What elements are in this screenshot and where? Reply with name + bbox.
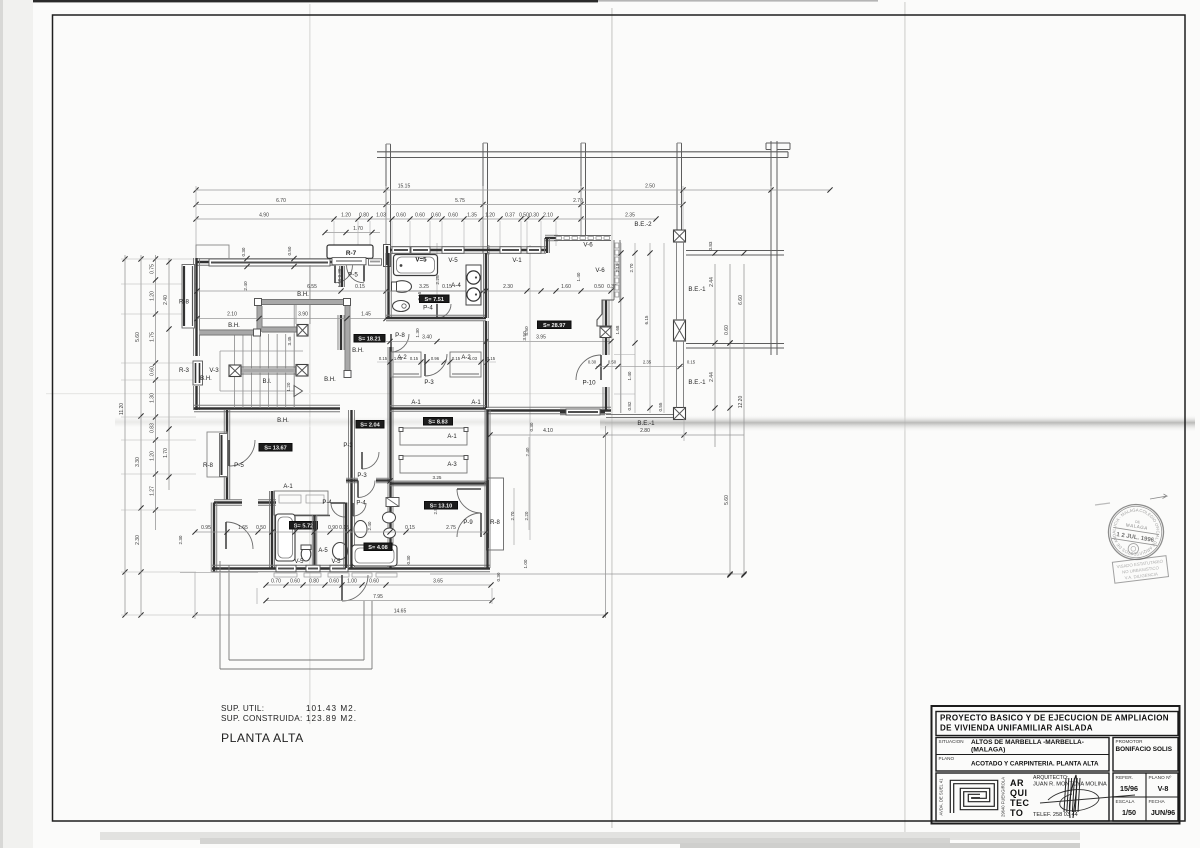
svg-text:0.50: 0.50 <box>594 284 604 290</box>
svg-text:0.50: 0.50 <box>519 213 529 219</box>
svg-text:0.60: 0.60 <box>415 213 425 219</box>
svg-text:1.20: 1.20 <box>485 213 495 219</box>
svg-text:B.H.: B.H. <box>277 418 289 424</box>
svg-text:1/50: 1/50 <box>1122 808 1136 817</box>
svg-text:2.40: 2.40 <box>163 295 169 305</box>
svg-text:1.40: 1.40 <box>627 371 632 380</box>
svg-text:P-10: P-10 <box>582 380 596 387</box>
svg-text:0.15: 0.15 <box>452 356 461 361</box>
svg-text:P-5: P-5 <box>234 462 244 469</box>
svg-text:A-3: A-3 <box>447 462 457 468</box>
svg-text:SUP. CONSTRUIDA:: SUP. CONSTRUIDA: <box>221 714 303 723</box>
svg-text:2.30: 2.30 <box>135 535 141 545</box>
svg-text:0.75: 0.75 <box>150 264 156 274</box>
svg-text:FECHA: FECHA <box>1149 799 1166 805</box>
svg-text:0.70: 0.70 <box>271 579 281 585</box>
svg-text:B.I.: B.I. <box>262 379 271 385</box>
svg-text:0.80: 0.80 <box>309 579 319 585</box>
svg-text:0.15: 0.15 <box>687 360 696 365</box>
svg-text:V-5: V-5 <box>331 559 341 565</box>
svg-text:0.60: 0.60 <box>369 579 379 585</box>
svg-text:0.60: 0.60 <box>724 325 730 335</box>
svg-text:S= 8.83: S= 8.83 <box>428 419 447 425</box>
svg-text:SITUACION: SITUACION <box>939 739 964 744</box>
svg-text:A-4: A-4 <box>451 282 461 289</box>
svg-text:0.60: 0.60 <box>396 213 406 219</box>
svg-text:15/96: 15/96 <box>1120 784 1138 793</box>
svg-text:JUN/96: JUN/96 <box>1151 808 1175 817</box>
svg-text:2.35: 2.35 <box>625 213 635 219</box>
svg-text:V-5: V-5 <box>448 257 458 264</box>
svg-text:0.83: 0.83 <box>150 423 156 433</box>
svg-text:B.E.-2: B.E.-2 <box>634 221 652 228</box>
svg-text:A-1: A-1 <box>471 400 481 406</box>
svg-text:3.25: 3.25 <box>419 284 429 290</box>
svg-text:B.H.: B.H. <box>324 377 336 383</box>
svg-text:2.44: 2.44 <box>709 372 715 382</box>
svg-text:0.50: 0.50 <box>287 246 292 255</box>
svg-text:14.65: 14.65 <box>394 609 407 615</box>
svg-text:TELEF. 258 03 44: TELEF. 258 03 44 <box>1033 812 1078 818</box>
svg-text:0.60: 0.60 <box>150 366 156 376</box>
svg-text:1.03: 1.03 <box>394 356 403 361</box>
svg-text:S= 4.08: S= 4.08 <box>368 545 387 551</box>
svg-text:2.50: 2.50 <box>645 184 655 190</box>
svg-text:S= 28.97: S= 28.97 <box>543 323 566 329</box>
svg-text:1.00: 1.00 <box>347 579 357 585</box>
svg-text:SUP. UTIL:: SUP. UTIL: <box>221 704 264 713</box>
svg-text:B.E.-1: B.E.-1 <box>688 286 706 293</box>
svg-text:1.60: 1.60 <box>561 284 571 290</box>
svg-text:P-9: P-9 <box>463 520 473 526</box>
svg-text:6.70: 6.70 <box>276 198 286 204</box>
svg-text:P-5: P-5 <box>348 272 358 279</box>
svg-text:2.75: 2.75 <box>446 525 456 531</box>
svg-text:2.10: 2.10 <box>227 312 237 318</box>
svg-text:V-6: V-6 <box>583 242 593 249</box>
svg-text:JUAN R. MONTOYA MOLINA: JUAN R. MONTOYA MOLINA <box>1033 782 1107 788</box>
svg-text:V-1: V-1 <box>512 257 522 264</box>
svg-text:2.70: 2.70 <box>510 511 515 520</box>
svg-text:1.30: 1.30 <box>415 328 421 338</box>
svg-text:A-5: A-5 <box>318 548 328 554</box>
svg-text:P-4: P-4 <box>423 305 433 312</box>
svg-text:0.37: 0.37 <box>505 213 515 219</box>
svg-text:101.43 M2.: 101.43 M2. <box>306 704 357 713</box>
svg-text:3.40: 3.40 <box>422 335 432 341</box>
svg-text:0.82: 0.82 <box>627 401 632 410</box>
svg-text:15.15: 15.15 <box>398 184 411 190</box>
svg-text:1.65: 1.65 <box>238 525 248 531</box>
svg-text:1.45: 1.45 <box>361 312 371 318</box>
svg-text:2.30: 2.30 <box>178 535 183 544</box>
svg-text:S= 18.21: S= 18.21 <box>358 336 381 342</box>
svg-text:123.89 M2.: 123.89 M2. <box>306 714 357 723</box>
svg-text:3.65: 3.65 <box>433 579 443 585</box>
svg-text:0.60: 0.60 <box>448 213 458 219</box>
svg-text:4.10: 4.10 <box>543 428 553 434</box>
svg-text:S= 13.67: S= 13.67 <box>264 445 287 451</box>
svg-text:0.60: 0.60 <box>290 579 300 585</box>
svg-text:R-3: R-3 <box>179 367 190 374</box>
svg-text:B.E.-1: B.E.-1 <box>688 379 706 386</box>
svg-text:ALTOS DE MARBELLA -MARBELLA-: ALTOS DE MARBELLA -MARBELLA- <box>971 739 1084 746</box>
svg-text:2.70: 2.70 <box>573 198 583 204</box>
svg-text:2.10: 2.10 <box>543 213 553 219</box>
svg-text:0.15: 0.15 <box>379 356 388 361</box>
svg-text:5.60: 5.60 <box>724 495 730 505</box>
svg-text:0.95: 0.95 <box>201 525 211 531</box>
svg-text:PLANO Nº: PLANO Nº <box>1149 775 1172 781</box>
svg-text:29640 FUENGIROLA: 29640 FUENGIROLA <box>1001 777 1006 817</box>
svg-text:1.20: 1.20 <box>150 451 156 461</box>
svg-text:0.83: 0.83 <box>708 241 713 250</box>
svg-text:V=5: V=5 <box>415 257 427 264</box>
svg-text:ACOTADO Y CARPINTERIA. PLANTA: ACOTADO Y CARPINTERIA. PLANTA ALTA <box>971 761 1099 768</box>
svg-text:PROYECTO BASICO Y DE EJECUCION: PROYECTO BASICO Y DE EJECUCION DE AMPLIA… <box>940 714 1169 723</box>
svg-text:0.96: 0.96 <box>431 356 440 361</box>
svg-text:0.15: 0.15 <box>339 525 349 531</box>
svg-text:2.20: 2.20 <box>524 511 529 520</box>
svg-text:2.85: 2.85 <box>433 505 438 514</box>
svg-text:1.20: 1.20 <box>286 382 291 391</box>
svg-text:1.68: 1.68 <box>615 325 620 334</box>
svg-text:2.80: 2.80 <box>640 428 650 434</box>
svg-text:R-8: R-8 <box>203 462 214 469</box>
svg-text:TEC: TEC <box>1010 798 1030 808</box>
svg-text:4.90: 4.90 <box>259 213 269 219</box>
svg-text:0.60: 0.60 <box>329 579 339 585</box>
svg-text:0.30: 0.30 <box>241 247 246 256</box>
svg-text:S= 7.51: S= 7.51 <box>425 297 444 303</box>
svg-text:TO: TO <box>1010 808 1023 818</box>
svg-text:1.03: 1.03 <box>469 356 478 361</box>
svg-text:3.95: 3.95 <box>536 335 546 341</box>
svg-text:3.50: 3.50 <box>522 331 528 341</box>
svg-text:B.H.: B.H. <box>352 348 364 354</box>
svg-text:1.35: 1.35 <box>467 213 477 219</box>
svg-text:1.70: 1.70 <box>163 448 169 458</box>
svg-text:B.E.-1: B.E.-1 <box>637 420 655 427</box>
svg-text:0.30: 0.30 <box>406 555 411 564</box>
svg-text:2.44: 2.44 <box>709 277 715 287</box>
svg-text:AR: AR <box>1010 778 1024 788</box>
svg-text:1.20: 1.20 <box>150 291 156 301</box>
svg-text:3.90: 3.90 <box>298 312 308 318</box>
svg-text:B.H.: B.H. <box>200 376 212 382</box>
svg-text:B.H.: B.H. <box>228 323 240 329</box>
svg-text:REFER.: REFER. <box>1116 775 1134 781</box>
svg-text:6.60: 6.60 <box>738 295 744 305</box>
svg-text:A-1: A-1 <box>447 434 457 440</box>
svg-text:P-3: P-3 <box>424 380 434 386</box>
svg-text:AVDA. DE SUEL 41: AVDA. DE SUEL 41 <box>939 778 944 816</box>
svg-text:P-3: P-3 <box>343 443 353 449</box>
svg-text:R-7: R-7 <box>346 250 357 257</box>
svg-text:5.60: 5.60 <box>135 332 141 342</box>
svg-text:1.30: 1.30 <box>150 393 156 403</box>
svg-text:V-3: V-3 <box>209 367 219 374</box>
svg-text:3.30: 3.30 <box>135 457 141 467</box>
svg-text:0.55: 0.55 <box>658 402 663 411</box>
svg-text:1.27: 1.27 <box>150 486 156 496</box>
svg-text:R-8: R-8 <box>179 299 190 306</box>
svg-text:PROMOTOR: PROMOTOR <box>1116 739 1144 744</box>
svg-text:2.25: 2.25 <box>435 275 441 285</box>
svg-text:2.40: 2.40 <box>243 281 249 291</box>
svg-text:0.50: 0.50 <box>256 525 266 531</box>
svg-text:QUI: QUI <box>1010 788 1028 798</box>
svg-text:2.19: 2.19 <box>615 263 620 272</box>
svg-text:3.45: 3.45 <box>287 336 292 345</box>
svg-text:ESCALA: ESCALA <box>1116 799 1136 805</box>
svg-text:DE VIVIENDA UNIFAMILIAR AISLAD: DE VIVIENDA UNIFAMILIAR AISLADA <box>940 724 1093 733</box>
svg-text:6.15: 6.15 <box>644 315 649 324</box>
svg-text:7.95: 7.95 <box>373 594 383 600</box>
svg-text:P-3: P-3 <box>357 473 367 479</box>
svg-text:A-1: A-1 <box>411 400 421 406</box>
svg-text:12.20: 12.20 <box>738 396 744 409</box>
svg-text:2.40: 2.40 <box>367 521 372 530</box>
svg-text:P-8: P-8 <box>395 332 405 339</box>
svg-text:BONIFACIO SOLIS: BONIFACIO SOLIS <box>1116 746 1173 753</box>
svg-text:PLANO: PLANO <box>939 756 955 761</box>
svg-text:1.50 0.30: 1.50 0.30 <box>337 268 342 287</box>
svg-text:0.90: 0.90 <box>328 525 338 531</box>
svg-text:0.50: 0.50 <box>608 360 617 365</box>
svg-text:ARQUITECTO:: ARQUITECTO: <box>1033 775 1068 781</box>
svg-text:(MALAGA): (MALAGA) <box>971 747 1005 754</box>
svg-text:1.20: 1.20 <box>341 213 351 219</box>
svg-text:0.60: 0.60 <box>431 213 441 219</box>
svg-text:1.75: 1.75 <box>150 332 156 342</box>
svg-text:2.70: 2.70 <box>629 263 634 272</box>
svg-text:1.70: 1.70 <box>294 525 304 531</box>
svg-text:V-5: V-5 <box>294 559 304 565</box>
svg-text:0.30: 0.30 <box>529 213 539 219</box>
svg-text:6.55: 6.55 <box>307 284 317 290</box>
svg-text:1.00: 1.00 <box>523 559 528 568</box>
svg-text:S= 2.04: S= 2.04 <box>360 422 380 428</box>
svg-text:0.15: 0.15 <box>405 525 415 531</box>
svg-text:A-1: A-1 <box>283 484 293 490</box>
svg-text:11.20: 11.20 <box>119 403 125 415</box>
svg-text:0.80: 0.80 <box>359 213 369 219</box>
svg-text:0.30: 0.30 <box>529 422 534 431</box>
svg-text:R-8: R-8 <box>490 520 500 526</box>
svg-text:V-6: V-6 <box>595 267 605 274</box>
svg-text:0.15: 0.15 <box>410 356 419 361</box>
svg-text:0.15: 0.15 <box>355 284 365 290</box>
svg-text:2.30: 2.30 <box>503 284 513 290</box>
svg-text:P-4: P-4 <box>356 501 366 507</box>
svg-text:0.30: 0.30 <box>496 572 501 581</box>
svg-text:PLANTA ALTA: PLANTA ALTA <box>221 731 304 745</box>
svg-text:2.35: 2.35 <box>643 360 652 365</box>
svg-text:1.40: 1.40 <box>576 272 581 281</box>
svg-text:V-8: V-8 <box>1158 784 1169 793</box>
svg-text:B.H.: B.H. <box>297 292 309 298</box>
svg-text:1.03: 1.03 <box>376 213 386 219</box>
svg-text:3.25: 3.25 <box>433 475 442 480</box>
svg-text:0.30: 0.30 <box>588 360 597 365</box>
svg-text:5.75: 5.75 <box>455 198 465 204</box>
